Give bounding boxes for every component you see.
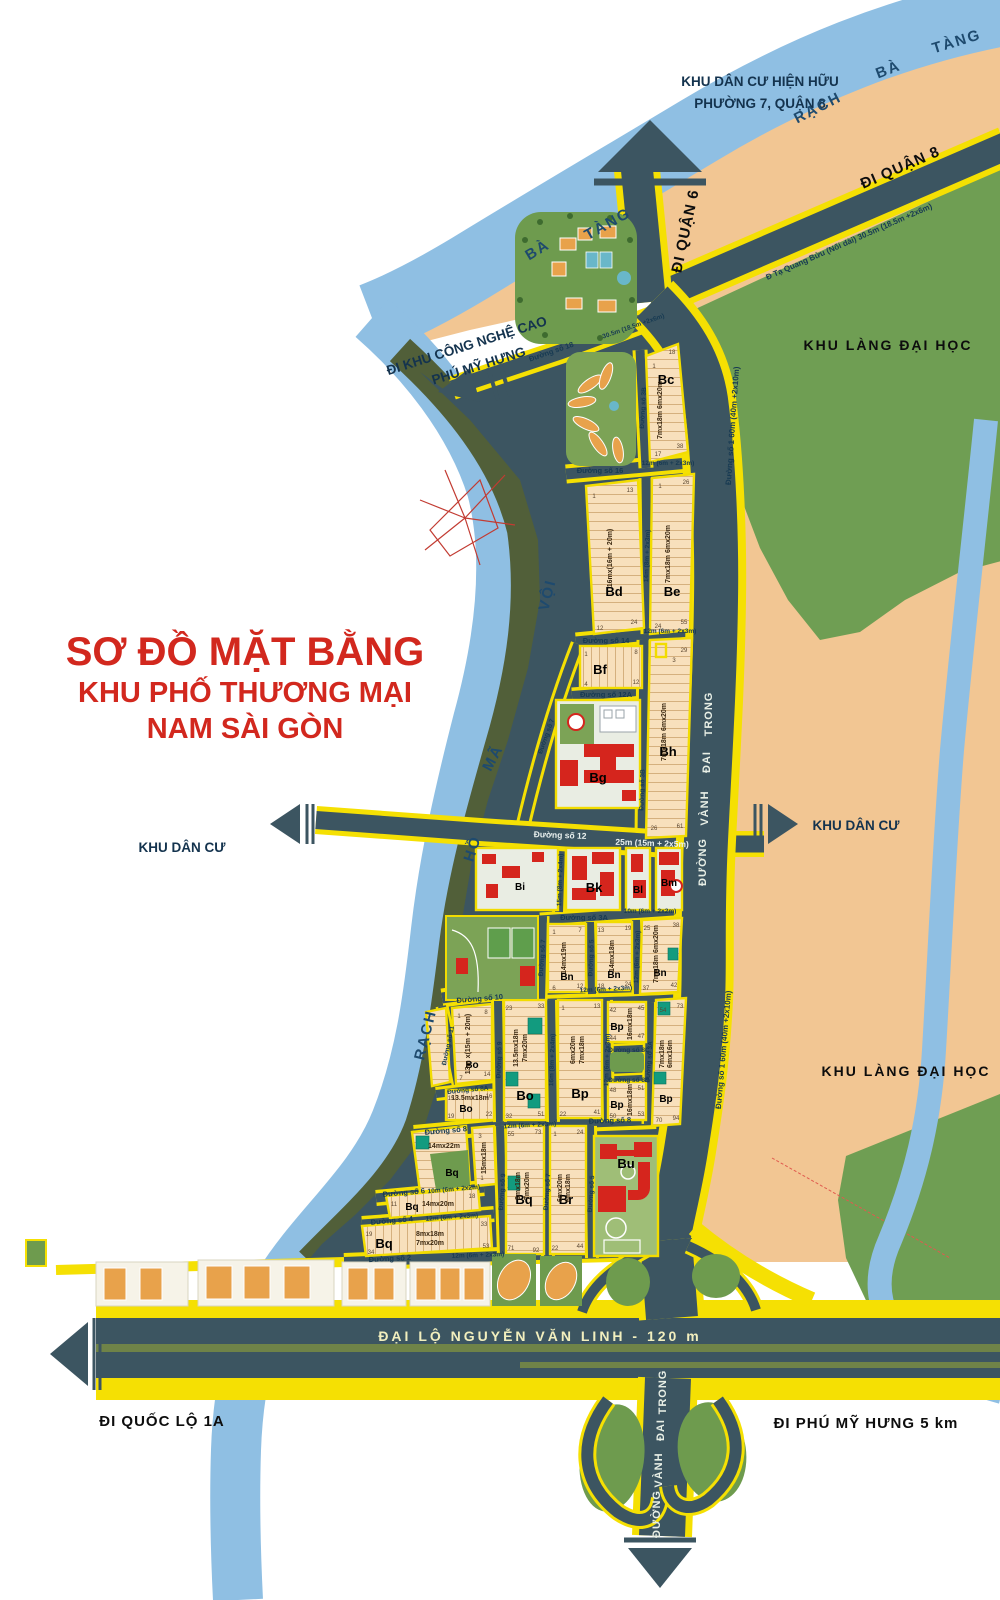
lot-num: 47 <box>638 1034 645 1040</box>
dims-bo2b: 7mx20m <box>522 1034 529 1062</box>
block-label-be: Be <box>664 584 681 599</box>
lot-num: 24 <box>625 982 632 988</box>
label-vdt-duong-n: ĐƯỜNG <box>696 838 709 886</box>
apartment-tower <box>206 1266 232 1299</box>
complex-bk <box>566 848 620 910</box>
infield-north-east <box>692 1254 740 1298</box>
bu-building <box>634 1142 652 1157</box>
block-label-bq2: Bq <box>405 1202 418 1213</box>
label-s3aw: 10m (6m + 2x2m) <box>624 908 677 915</box>
lot-num: 24 <box>655 624 662 630</box>
label-s16: Đường số 16 <box>577 466 624 475</box>
lot-num: 13 <box>594 1004 601 1010</box>
label-s14: Đường số 14 <box>583 636 630 645</box>
label-khu-dan-cu-east: KHU DÂN CƯ <box>813 818 901 833</box>
dims-bn1: 14mx19m <box>561 942 568 974</box>
dims-bp1a: 6mx20m <box>570 1036 577 1064</box>
lot-num: 22 <box>560 1112 567 1118</box>
apartment-tower <box>464 1268 484 1300</box>
lot-num: 44 <box>577 1244 584 1250</box>
bi-building <box>486 884 498 898</box>
block-label-bg: Bg <box>589 770 606 785</box>
complex-sports <box>446 916 538 1000</box>
label-vdt-trong-n: TRONG <box>703 692 715 737</box>
lot-num: 53 <box>638 1112 645 1118</box>
lot-num: 14 <box>484 1072 491 1078</box>
lot-num: 41 <box>594 1110 601 1116</box>
lot-num: 18 <box>598 984 605 990</box>
dims-bp2: 16mx18m <box>627 1008 634 1040</box>
lot-num: 12 <box>633 680 640 686</box>
dims-br-b: 6mx18m <box>565 1174 572 1202</box>
dims-bo1: 13m x(15m + 20m) <box>465 1014 472 1075</box>
lot-num: 13 <box>598 928 605 934</box>
resort-building <box>566 298 582 309</box>
block-be <box>650 474 694 634</box>
apartment-tower <box>374 1268 394 1300</box>
tree <box>627 237 633 243</box>
highway-median-1 <box>96 1344 1000 1352</box>
dims-bp4a: 7mx18m <box>659 1040 666 1068</box>
lot-num: 12 <box>577 984 584 990</box>
label-university-village-south: KHU LÀNG ĐẠI HỌC <box>822 1063 991 1079</box>
label-vdt-vanh-n: VÀNH <box>698 790 711 825</box>
lot-num: 33 <box>538 1004 545 1010</box>
block-label-bi: Bi <box>515 882 525 893</box>
lot-num: 25 <box>644 926 651 932</box>
teal-lot-bn3 <box>668 948 678 960</box>
plaza-green <box>610 1052 644 1072</box>
dims-bq4b: 7mx20m <box>524 1172 531 1200</box>
label-university-village-north: KHU LÀNG ĐẠI HỌC <box>804 337 973 353</box>
resort-building <box>552 262 566 276</box>
bi-building <box>532 852 544 862</box>
dims-be: 7mx18m 6mx20m <box>665 525 672 583</box>
lot-num: 23 <box>506 1006 513 1012</box>
block-label-bp1: Bp <box>571 1086 588 1101</box>
tree <box>522 237 528 243</box>
lot-num: 70 <box>656 1118 663 1124</box>
lot-num: 22 <box>486 1112 493 1118</box>
lot-num: 24 <box>577 1130 584 1136</box>
dims-bq1: 14mx22m <box>428 1143 460 1150</box>
lot-num: 16 <box>486 1094 493 1100</box>
lot-num: 51 <box>638 1086 645 1092</box>
lot-num: 48 <box>610 1088 617 1094</box>
apartment-tower <box>416 1268 436 1300</box>
tennis-court <box>586 252 598 268</box>
label-di-quoc-lo-1a: ĐI QUỐC LỘ 1A <box>99 1412 225 1430</box>
label-s16w: 12m (6m + 2x3m) <box>642 460 695 467</box>
green-square-west <box>26 1240 46 1266</box>
lot-num: 42 <box>610 1008 617 1014</box>
map-title-line2: KHU PHỐ THƯƠNG MẠI <box>78 675 412 709</box>
teal-lot-bp4-b <box>654 1072 666 1084</box>
label-s9-n: Đường số 9 <box>494 1041 503 1078</box>
dims-bh: 7mx18m 6mx20m <box>661 703 668 761</box>
label-s5-n: Đường số 5 <box>586 939 595 976</box>
lot-num: 33 <box>481 1222 488 1228</box>
lot-num: 38 <box>673 923 680 929</box>
lot-num: 44 <box>610 1036 617 1042</box>
lot-num: 34 <box>368 1250 375 1256</box>
complex-bi <box>476 848 558 910</box>
sports-building <box>520 966 535 986</box>
lot-num: 55 <box>681 620 688 626</box>
lot-num: 18 <box>469 1194 476 1200</box>
bi-building <box>502 866 520 878</box>
complex-flower-garden <box>566 352 636 466</box>
tree <box>542 332 548 338</box>
label-khu-dan-cu-west: KHU DÂN CƯ <box>139 840 227 855</box>
label-s8c: Đường số 8C <box>608 1046 650 1054</box>
label-vdt-dai-n: ĐAI <box>701 751 713 773</box>
lot-num: 13 <box>627 488 634 494</box>
lot-num: 19 <box>448 1114 455 1120</box>
block-label-bo3: Bo <box>459 1104 472 1115</box>
apartment-tower <box>140 1268 162 1300</box>
apartment-tower <box>284 1266 310 1299</box>
lot-num: 55 <box>508 1132 515 1138</box>
lot-num: 24 <box>631 620 638 626</box>
dims-bo3: 13.5mx18m <box>451 1095 489 1102</box>
apartment-tower <box>440 1268 460 1300</box>
dims-bp4b: 6mx16m <box>667 1040 674 1068</box>
flower-pond <box>609 401 619 411</box>
apartment-tower <box>244 1266 270 1299</box>
label-existing-residential-1: KHU DÂN CƯ HIỆN HỮU <box>681 74 838 89</box>
dims-br-a: 6mx20m <box>557 1174 564 1202</box>
bu-building <box>598 1186 626 1212</box>
site-plan-map: SƠ ĐỒ MẶT BẰNG KHU PHỐ THƯƠNG MẠI NAM SÀ… <box>0 0 1000 1600</box>
label-di-phu-my-hung: ĐI PHÚ MỸ HƯNG 5 km <box>774 1414 959 1432</box>
lot-num: 19 <box>366 1232 373 1238</box>
dims-bp3: 16mx18m <box>627 1084 634 1116</box>
bl-building <box>631 854 643 872</box>
tennis-court <box>488 928 510 958</box>
bg-building <box>560 760 578 786</box>
lot-num: 73 <box>677 1004 684 1010</box>
block-label-bp2: Bp <box>610 1022 623 1033</box>
dims-bn3: 7mx18m 6mx20m <box>653 925 660 983</box>
bg-court <box>568 714 584 730</box>
dims-bn2: 14mx18m <box>609 940 616 972</box>
complex-bl <box>626 848 650 910</box>
lot-num: 17 <box>655 452 662 458</box>
dims-bq2: 14mx20m <box>422 1201 454 1208</box>
sports-building <box>456 958 468 974</box>
resort-building <box>598 300 616 312</box>
lot-num: 32 <box>506 1114 513 1120</box>
teal-lot-bo2-a <box>528 1018 542 1034</box>
block-label-bp3: Bp <box>610 1100 623 1111</box>
block-label-bu: Bu <box>617 1156 634 1171</box>
block-label-bq3: Bq <box>375 1236 392 1251</box>
lot-num: 11 <box>391 1202 398 1208</box>
dims-bp1b: 7mx18m <box>579 1036 586 1064</box>
label-s3a: Đường số 3A <box>560 913 608 922</box>
lot-num: 92 <box>533 1248 540 1254</box>
lot-num: 22 <box>552 1246 559 1252</box>
dims-bc: 7mx18m 6mx20m <box>657 381 664 439</box>
apartment-tower <box>104 1268 126 1300</box>
bk-building <box>592 852 614 864</box>
lot-num: 19 <box>625 926 632 932</box>
lot-num: 37 <box>643 986 650 992</box>
bg-building <box>622 790 636 801</box>
dims-bo2a: 13.5mx18m <box>513 1029 520 1067</box>
lot-num: 18 <box>669 350 676 356</box>
lot-num: 71 <box>508 1246 515 1252</box>
block-label-bl: Bl <box>633 885 643 896</box>
highway-nguyen-van-linh <box>96 1300 1000 1400</box>
bm-building <box>659 852 679 865</box>
lot-num: 94 <box>673 1116 680 1122</box>
highway-median-2 <box>520 1362 1000 1368</box>
block-bd <box>586 480 644 634</box>
lot-num: 54 <box>660 1008 667 1014</box>
dims-bd: 16mx(16m + 20m) <box>607 529 614 588</box>
infield-north-west <box>606 1258 650 1306</box>
complex-bu <box>594 1136 658 1256</box>
bk-building <box>572 856 587 880</box>
dims-bq3b: 7mx20m <box>416 1240 444 1247</box>
label-vdt-vanh-s: VÀNH <box>652 1452 665 1487</box>
label-vdt-trong-s: TRONG <box>657 1370 669 1415</box>
pond <box>617 271 631 285</box>
label-vdt-duong-s: ĐƯỜNG <box>650 1490 663 1538</box>
dims-bq5: 15mx18m <box>481 1142 488 1174</box>
lot-num: 53 <box>483 1244 490 1250</box>
tree <box>629 297 635 303</box>
lot-num: 50 <box>610 1114 617 1120</box>
interchange-stem-north <box>666 1240 672 1318</box>
block-label-bo2: Bo <box>516 1088 533 1103</box>
lot-num: 73 <box>535 1130 542 1136</box>
complex-bg <box>556 700 640 808</box>
apartment-tower <box>348 1268 368 1300</box>
lot-num: 12 <box>597 626 604 632</box>
lot-num: 26 <box>651 826 658 832</box>
lot-num: 26 <box>683 480 690 486</box>
label-s3b-s: Đường số 3B <box>637 769 646 811</box>
block-label-bq1: Bq <box>445 1168 458 1179</box>
label-nguyen-van-linh: ĐẠI LỘ NGUYỄN VĂN LINH - 120 m <box>378 1327 701 1344</box>
lot-num: 51 <box>538 1112 545 1118</box>
tennis-court <box>600 252 612 268</box>
block-label-bf: Bf <box>593 662 607 677</box>
lot-num: 38 <box>677 444 684 450</box>
label-s12a: Đường số 12A <box>580 690 633 699</box>
block-label-bk: Bk <box>586 880 603 895</box>
block-label-bp4: Bp <box>659 1094 672 1105</box>
resort-building <box>560 238 576 250</box>
tree <box>537 219 543 225</box>
dims-bq3a: 8mx18m <box>416 1231 444 1238</box>
block-label-bm: Bm <box>661 878 677 889</box>
tree <box>517 297 523 303</box>
lot-num: 45 <box>638 1006 645 1012</box>
tree <box>567 213 573 219</box>
label-s12: Đường số 12 <box>534 829 587 841</box>
label-vdt-dai-s: ĐAI <box>655 1419 667 1441</box>
lot-num: 61 <box>677 824 684 830</box>
lot-num: 42 <box>671 983 678 989</box>
map-title-line3: NAM SÀI GÒN <box>147 711 344 745</box>
teal-lot-bo2-b <box>506 1072 518 1086</box>
dims-bq4a: 8mx18m <box>515 1172 522 1200</box>
tennis-court <box>512 928 534 958</box>
lot-num: 15 <box>448 1096 455 1102</box>
map-title-line1: SƠ ĐỒ MẶT BẰNG <box>66 628 425 674</box>
bi-building <box>482 854 496 864</box>
label-s14w: 12m (6m + 2x3m) <box>644 628 697 635</box>
lot-num: 29 <box>681 648 688 654</box>
teal-lot-bh <box>656 644 666 657</box>
block-bh <box>646 638 692 838</box>
